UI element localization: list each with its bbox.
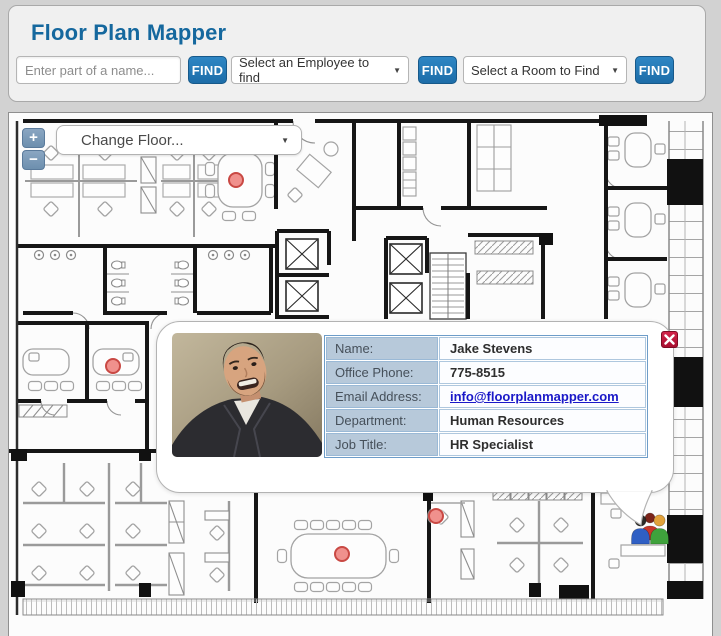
chevron-down-icon: ▼ (281, 136, 289, 145)
close-button[interactable] (661, 331, 678, 348)
employee-location-marker[interactable] (105, 358, 121, 374)
find-by-room-button[interactable]: FIND (635, 56, 674, 84)
employee-popup: Name: Jake Stevens Office Phone: 775-851… (156, 321, 674, 493)
floor-plan-map[interactable]: + − Change Floor... ▼ (8, 112, 713, 636)
employee-location-marker[interactable] (334, 546, 350, 562)
room-select-value: Select a Room to Find (471, 63, 600, 78)
field-label: Email Address: (326, 385, 438, 408)
field-label: Name: (326, 337, 438, 360)
header-panel: Floor Plan Mapper FIND Select an Employe… (8, 5, 706, 102)
chevron-down-icon: ▼ (611, 66, 619, 75)
field-label: Department: (326, 409, 438, 432)
field-value: 775-8515 (439, 361, 646, 384)
field-value: Jake Stevens (439, 337, 646, 360)
popup-tail (597, 490, 661, 530)
app-title: Floor Plan Mapper (31, 20, 226, 46)
table-row: Name: Jake Stevens (326, 337, 646, 360)
field-value: info@floorplanmapper.com (439, 385, 646, 408)
employee-select[interactable]: Select an Employee to find ▼ (231, 56, 409, 84)
field-value: Human Resources (439, 409, 646, 432)
table-row: Email Address: info@floorplanmapper.com (326, 385, 646, 408)
email-link[interactable]: info@floorplanmapper.com (450, 389, 619, 404)
zoom-out-button[interactable]: − (22, 150, 45, 170)
employee-location-marker[interactable] (428, 508, 444, 524)
employee-details-table: Name: Jake Stevens Office Phone: 775-851… (324, 335, 648, 458)
find-by-employee-button[interactable]: FIND (418, 56, 457, 84)
employee-location-marker[interactable] (228, 172, 244, 188)
name-search-input[interactable] (16, 56, 181, 84)
floor-select[interactable]: Change Floor... ▼ (56, 125, 302, 155)
room-select[interactable]: Select a Room to Find ▼ (463, 56, 627, 84)
floor-select-value: Change Floor... (81, 132, 184, 149)
zoom-in-button[interactable]: + (22, 128, 45, 148)
field-label: Job Title: (326, 433, 438, 456)
employee-photo (172, 333, 322, 457)
chevron-down-icon: ▼ (393, 66, 401, 75)
table-row: Office Phone: 775-8515 (326, 361, 646, 384)
field-label: Office Phone: (326, 361, 438, 384)
find-by-name-button[interactable]: FIND (188, 56, 227, 84)
table-row: Department: Human Resources (326, 409, 646, 432)
table-row: Job Title: HR Specialist (326, 433, 646, 456)
employee-select-value: Select an Employee to find (239, 55, 387, 85)
close-icon (664, 334, 675, 345)
field-value: HR Specialist (439, 433, 646, 456)
